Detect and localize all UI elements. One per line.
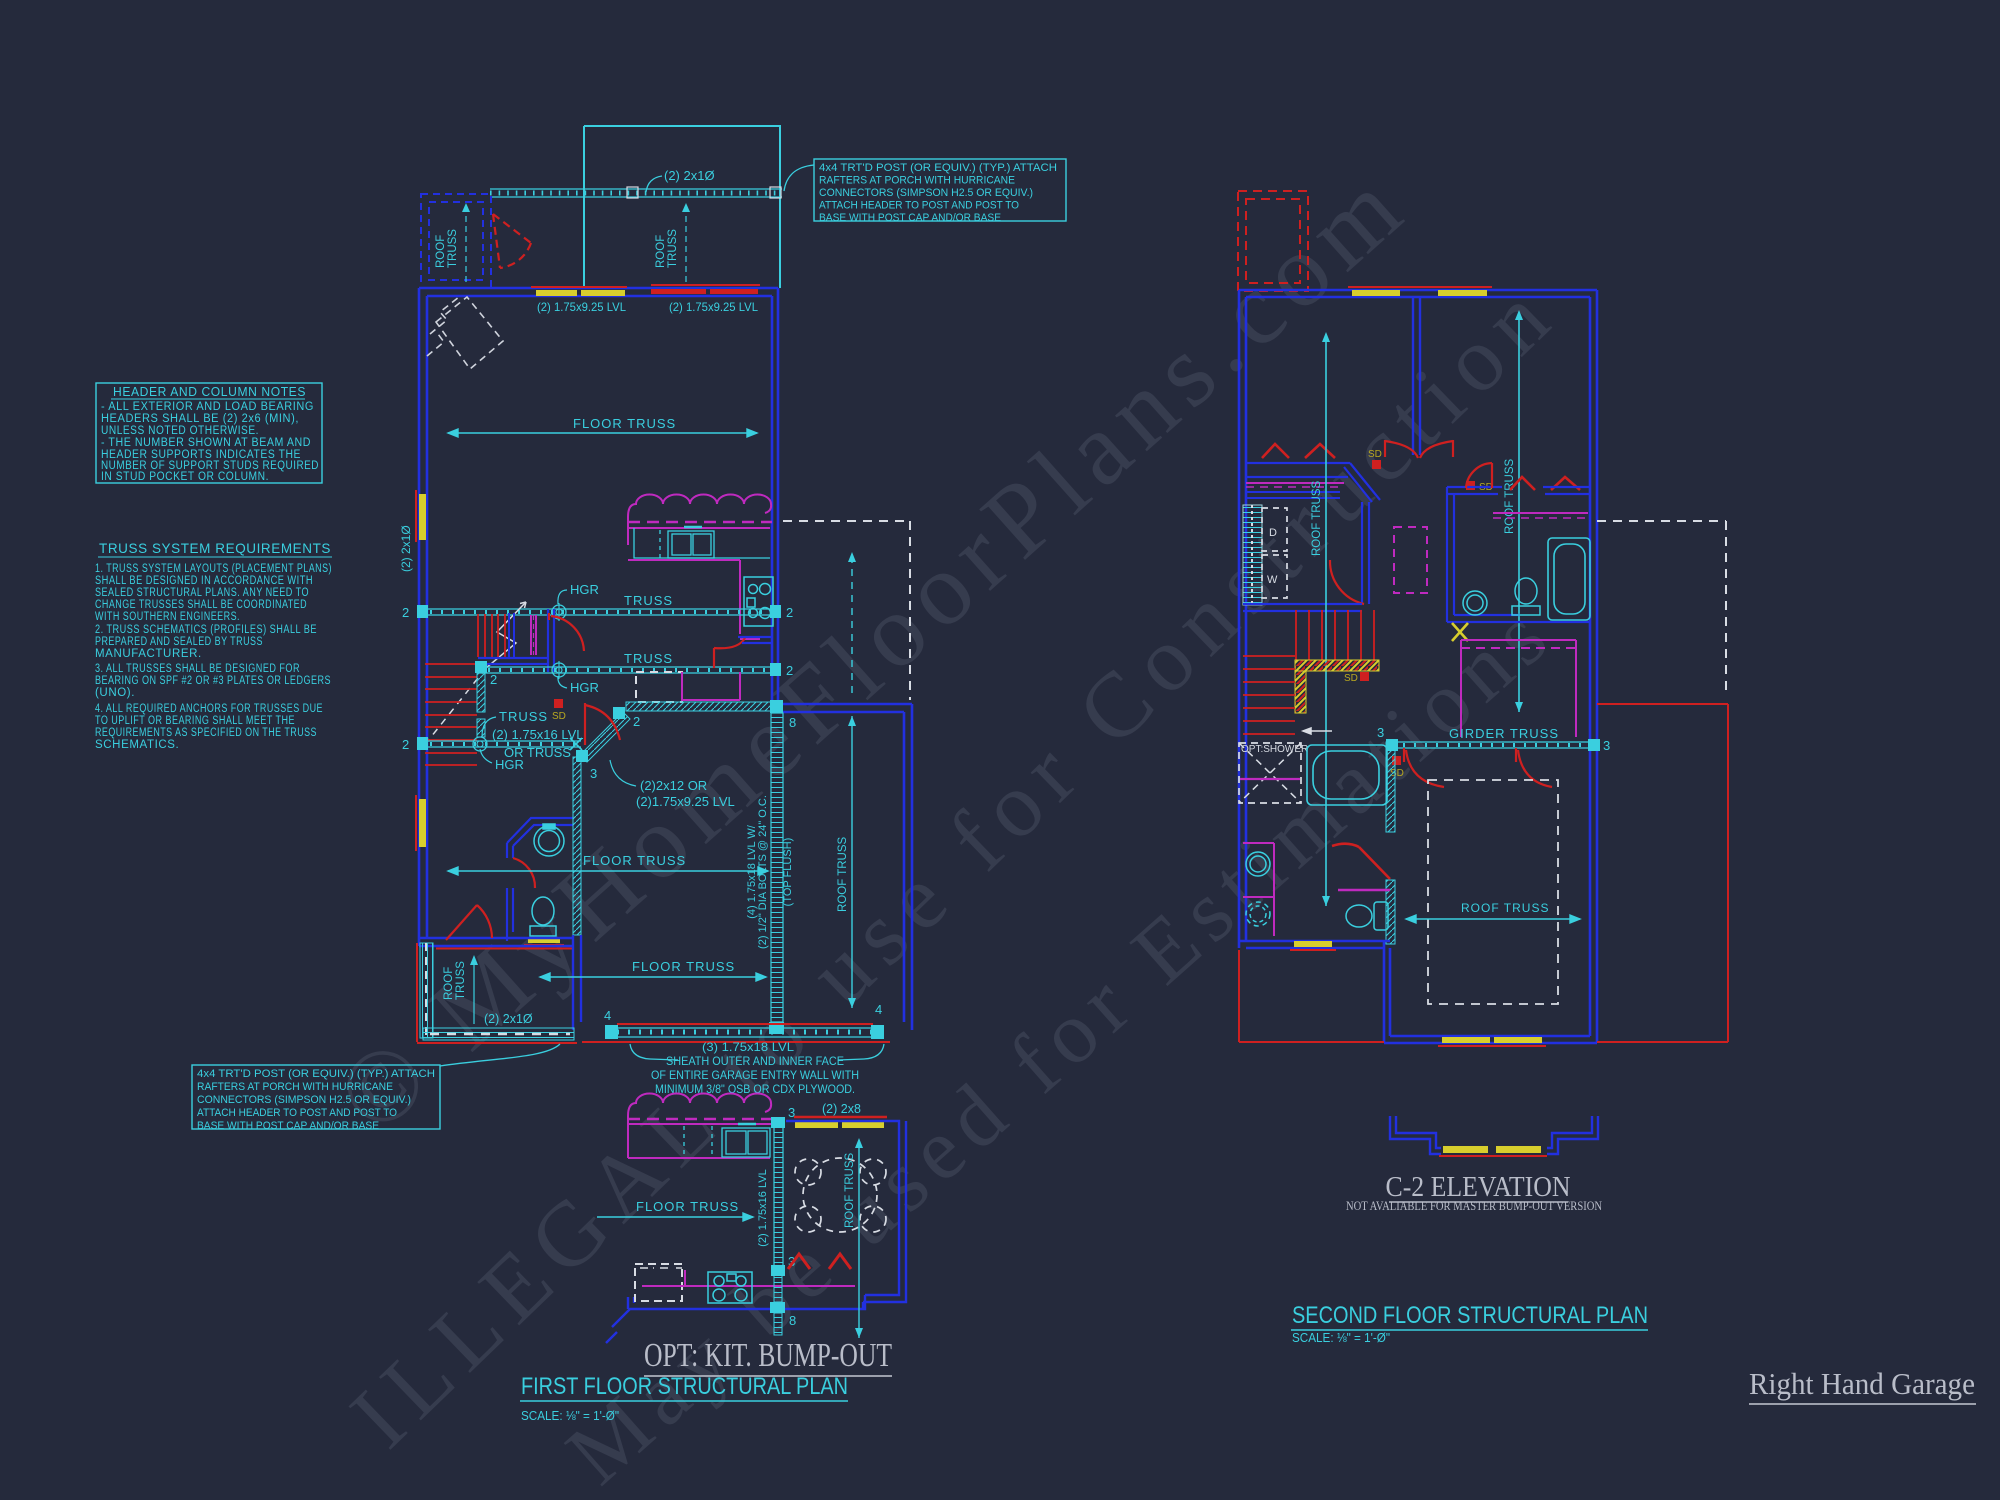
svg-text:OF ENTIRE GARAGE ENTRY WALL WI: OF ENTIRE GARAGE ENTRY WALL WITH <box>651 1068 859 1082</box>
svg-text:(2) 1.75x9.25 LVL: (2) 1.75x9.25 LVL <box>669 300 758 314</box>
svg-text:- ALL EXTERIOR AND LOAD BEARIN: - ALL EXTERIOR AND LOAD BEARING <box>101 401 314 413</box>
svg-text:SCHEMATICS.: SCHEMATICS. <box>95 739 179 751</box>
svg-text:2: 2 <box>633 714 640 729</box>
svg-text:ATTACH HEADER TO POST AND POST: ATTACH HEADER TO POST AND POST TO <box>197 1107 397 1119</box>
svg-text:IN STUD POCKET OR COLUMN.: IN STUD POCKET OR COLUMN. <box>101 471 269 483</box>
svg-text:TRUSS: TRUSS <box>455 961 467 1000</box>
svg-text:2: 2 <box>402 737 409 752</box>
svg-text:TRUSS: TRUSS <box>624 651 673 666</box>
svg-text:D: D <box>1269 527 1277 539</box>
svg-text:(2) 1/2" DIA BOLTS @ 24" O.C.: (2) 1/2" DIA BOLTS @ 24" O.C. <box>757 795 769 949</box>
svg-text:WITH SOUTHERN ENGINEERS.: WITH SOUTHERN ENGINEERS. <box>95 611 240 623</box>
svg-text:ROOF: ROOF <box>655 235 667 268</box>
svg-text:ATTACH HEADER TO POST AND POST: ATTACH HEADER TO POST AND POST TO <box>819 200 1019 212</box>
svg-text:4: 4 <box>875 1002 882 1017</box>
svg-text:2: 2 <box>402 605 409 620</box>
svg-text:PREPARED AND SEALED BY TRUSS: PREPARED AND SEALED BY TRUSS <box>95 636 263 648</box>
svg-text:(2)2x12 OR: (2)2x12 OR <box>640 778 707 793</box>
svg-text:FLOOR TRUSS: FLOOR TRUSS <box>583 853 686 868</box>
svg-text:2: 2 <box>786 605 793 620</box>
svg-text:2: 2 <box>786 663 793 678</box>
svg-text:(TOP FLUSH): (TOP FLUSH) <box>782 838 794 907</box>
svg-text:FLOOR TRUSS: FLOOR TRUSS <box>573 416 676 431</box>
svg-text:RAFTERS AT PORCH WITH HURRICAN: RAFTERS AT PORCH WITH HURRICANE <box>197 1081 393 1093</box>
svg-text:SD: SD <box>1344 673 1358 684</box>
svg-text:8: 8 <box>789 715 796 730</box>
svg-text:NOT AVALIABLE FOR MASTER BUMP-: NOT AVALIABLE FOR MASTER BUMP-OUT VERSIO… <box>1346 1199 1602 1213</box>
svg-text:SHALL BE DESIGNED IN ACCORDANC: SHALL BE DESIGNED IN ACCORDANCE WITH <box>95 575 313 587</box>
svg-text:REQUIREMENTS AS SPECIFIED ON T: REQUIREMENTS AS SPECIFIED ON THE TRUSS <box>95 727 317 739</box>
svg-text:4: 4 <box>604 1008 611 1023</box>
svg-text:SECOND FLOOR STRUCTURAL PLAN: SECOND FLOOR STRUCTURAL PLAN <box>1292 1302 1648 1329</box>
svg-text:3: 3 <box>590 766 597 781</box>
svg-text:2: 2 <box>490 672 497 687</box>
svg-text:3. ALL TRUSSES SHALL BE DESIGN: 3. ALL TRUSSES SHALL BE DESIGNED FOR <box>95 663 300 675</box>
svg-text:SHEATH OUTER AND INNER FACE: SHEATH OUTER AND INNER FACE <box>666 1054 844 1068</box>
svg-text:FLOOR TRUSS: FLOOR TRUSS <box>636 1199 739 1214</box>
svg-text:4x4 TRT'D POST (OR EQUIV.) (TY: 4x4 TRT'D POST (OR EQUIV.) (TYP.) ATTACH <box>197 1068 435 1080</box>
svg-text:(2) 2x1Ø: (2) 2x1Ø <box>399 525 413 572</box>
svg-text:HEADER AND COLUMN NOTES: HEADER AND COLUMN NOTES <box>113 385 306 399</box>
svg-text:RAFTERS AT PORCH WITH HURRICAN: RAFTERS AT PORCH WITH HURRICANE <box>819 175 1015 187</box>
svg-text:Right Hand Garage: Right Hand Garage <box>1749 1366 1975 1401</box>
svg-text:(2) 1.75x16 LVL: (2) 1.75x16 LVL <box>757 1169 769 1246</box>
svg-text:(2) 1.75x9.25 LVL: (2) 1.75x9.25 LVL <box>537 300 626 314</box>
svg-text:(2) 1.75x16 LVL: (2) 1.75x16 LVL <box>492 727 584 742</box>
svg-text:(UNO).: (UNO). <box>95 687 135 699</box>
svg-text:SD: SD <box>1368 449 1382 460</box>
svg-text:CONNECTORS (SIMPSON H2.5 OR EQ: CONNECTORS (SIMPSON H2.5 OR EQUIV.) <box>197 1094 411 1106</box>
svg-text:- THE NUMBER SHOWN AT BEAM AND: - THE NUMBER SHOWN AT BEAM AND <box>101 437 311 449</box>
svg-text:TRUSS SYSTEM REQUIREMENTS: TRUSS SYSTEM REQUIREMENTS <box>99 540 331 556</box>
svg-text:(2) 2x1Ø: (2) 2x1Ø <box>484 1012 533 1026</box>
svg-text:1. TRUSS SYSTEM LAYOUTS (PLACE: 1. TRUSS SYSTEM LAYOUTS (PLACEMENT PLANS… <box>95 563 332 575</box>
svg-text:FIRST FLOOR STRUCTURAL PLAN: FIRST FLOOR STRUCTURAL PLAN <box>521 1373 848 1400</box>
svg-text:UNLESS NOTED OTHERWISE.: UNLESS NOTED OTHERWISE. <box>101 425 259 437</box>
svg-text:CHANGE TRUSSES SHALL BE COORDI: CHANGE TRUSSES SHALL BE COORDINATED <box>95 599 307 611</box>
svg-text:HEADERS SHALL BE (2) 2x6 (MIN): HEADERS SHALL BE (2) 2x6 (MIN), <box>101 413 299 425</box>
svg-text:SEALED STRUCTURAL PLANS. ANY N: SEALED STRUCTURAL PLANS. ANY NEED TO <box>95 587 309 599</box>
svg-text:OPT: KIT. BUMP-OUT: OPT: KIT. BUMP-OUT <box>644 1337 892 1374</box>
svg-text:BEARING ON SPF #2 OR #3 PLATES: BEARING ON SPF #2 OR #3 PLATES OR LEDGER… <box>95 675 331 687</box>
svg-text:HGR: HGR <box>570 582 599 597</box>
svg-text:TRUSS: TRUSS <box>624 593 673 608</box>
svg-text:3: 3 <box>1603 738 1610 753</box>
svg-text:2. TRUSS SCHEMATICS (PROFILES): 2. TRUSS SCHEMATICS (PROFILES) SHALL BE <box>95 624 317 636</box>
svg-text:ROOF: ROOF <box>443 967 455 1000</box>
svg-text:TRUSS: TRUSS <box>667 229 679 268</box>
svg-text:CONNECTORS (SIMPSON H2.5 OR EQ: CONNECTORS (SIMPSON H2.5 OR EQUIV.) <box>819 187 1033 199</box>
svg-text:ROOF TRUSS: ROOF TRUSS <box>1504 458 1516 534</box>
svg-text:W: W <box>1267 574 1278 586</box>
svg-text:ROOF TRUSS: ROOF TRUSS <box>837 836 849 912</box>
svg-text:BASE WITH POST CAP AND/OR BASE: BASE WITH POST CAP AND/OR BASE <box>819 212 1001 224</box>
svg-text:8: 8 <box>789 1313 796 1328</box>
svg-text:SCALE: ⅛" = 1'-Ø": SCALE: ⅛" = 1'-Ø" <box>1292 1330 1390 1345</box>
svg-text:HGR: HGR <box>570 680 599 695</box>
svg-text:ROOF TRUSS: ROOF TRUSS <box>1461 901 1549 915</box>
svg-text:MANUFACTURER.: MANUFACTURER. <box>95 648 202 660</box>
svg-text:GIRDER TRUSS: GIRDER TRUSS <box>1449 726 1559 741</box>
svg-text:ROOF TRUSS: ROOF TRUSS <box>1311 480 1323 556</box>
svg-text:ROOF TRUSS: ROOF TRUSS <box>844 1152 856 1228</box>
svg-text:SCALE: ⅛" = 1'-Ø": SCALE: ⅛" = 1'-Ø" <box>521 1408 619 1423</box>
svg-text:BASE WITH POST CAP AND/OR BASE: BASE WITH POST CAP AND/OR BASE <box>197 1120 379 1132</box>
svg-text:(2)1.75x9.25 LVL: (2)1.75x9.25 LVL <box>636 794 735 809</box>
svg-text:TRUSS: TRUSS <box>499 709 548 724</box>
svg-text:FLOOR TRUSS: FLOOR TRUSS <box>632 959 735 974</box>
svg-text:TRUSS: TRUSS <box>447 229 459 268</box>
svg-text:OPT:SHOWER: OPT:SHOWER <box>1241 744 1308 755</box>
svg-text:TO UPLIFT OR BEARING SHALL MEE: TO UPLIFT OR BEARING SHALL MEET THE <box>95 715 295 727</box>
svg-text:HGR: HGR <box>495 757 524 772</box>
svg-text:SD: SD <box>552 711 566 722</box>
svg-text:4. ALL REQUIRED ANCHORS FOR TR: 4. ALL REQUIRED ANCHORS FOR TRUSSES DUE <box>95 703 323 715</box>
svg-text:(2) 2x1Ø: (2) 2x1Ø <box>664 168 715 183</box>
svg-text:4x4 TRT'D POST (OR EQUIV.) (TY: 4x4 TRT'D POST (OR EQUIV.) (TYP.) ATTACH <box>819 162 1057 174</box>
svg-text:ROOF: ROOF <box>435 235 447 268</box>
svg-text:3: 3 <box>1377 725 1384 740</box>
svg-text:(3) 1.75x18 LVL: (3) 1.75x18 LVL <box>702 1040 794 1054</box>
svg-text:(2) 2x8: (2) 2x8 <box>822 1102 861 1116</box>
